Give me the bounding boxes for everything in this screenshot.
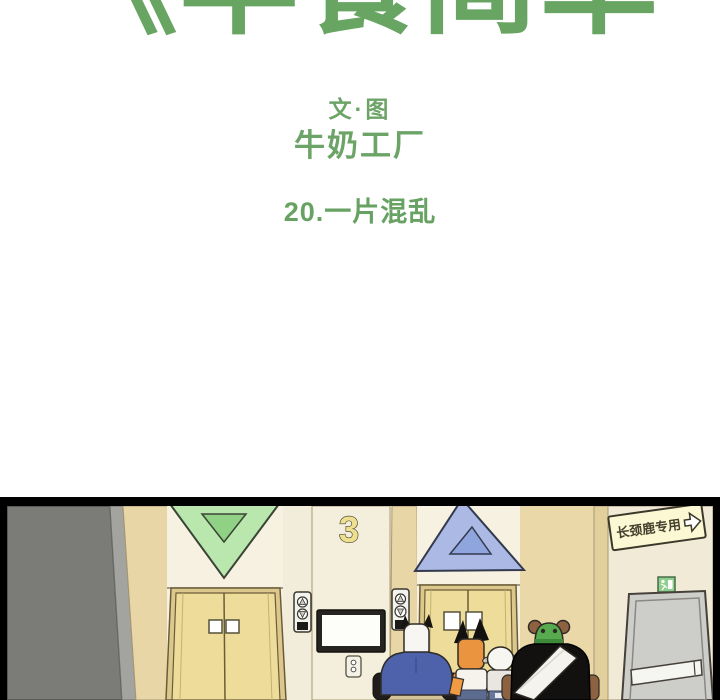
left-door-split xyxy=(224,593,225,700)
left-elevator-door xyxy=(166,588,286,700)
page-header: 《早餐简单 文·图 牛奶工厂 20.一片混乱 xyxy=(0,0,720,497)
chapter-title: 20.一片混乱 xyxy=(0,190,720,229)
comic-panel: 3 长颈鹿专用 xyxy=(0,497,720,700)
jeans-patch xyxy=(495,693,502,698)
author-name: 牛奶工厂 xyxy=(0,120,720,165)
left-door-window-2 xyxy=(226,620,239,633)
info-screen xyxy=(317,610,385,652)
tan-column-right xyxy=(594,506,608,700)
exit-door xyxy=(622,591,713,700)
sheep-head xyxy=(488,647,514,671)
panel-border-right xyxy=(713,497,720,700)
power-outlet xyxy=(346,656,361,677)
cap-eye-right xyxy=(553,629,557,633)
running-man-icon xyxy=(661,580,664,583)
floor-number: 3 xyxy=(339,509,359,550)
panel-border-top xyxy=(0,497,720,506)
right-door-window-1 xyxy=(444,612,460,630)
exit-sign xyxy=(658,577,675,592)
credit-label: 文·图 xyxy=(0,90,720,124)
elevator-lobby-scene: 3 长颈鹿专用 xyxy=(0,497,720,700)
cap-eye-left xyxy=(541,629,545,633)
series-title-text: 《早餐简单 xyxy=(0,0,720,44)
fox-hair xyxy=(458,639,484,669)
panel-display xyxy=(297,622,308,630)
call-button-panel-left xyxy=(294,592,311,632)
series-title-clipped: 《早餐简单 xyxy=(0,0,720,44)
gray-side-wall xyxy=(7,506,122,700)
panel-border-left xyxy=(0,497,7,700)
left-door-window-1 xyxy=(209,620,222,633)
exit-door-glyph xyxy=(668,580,673,589)
